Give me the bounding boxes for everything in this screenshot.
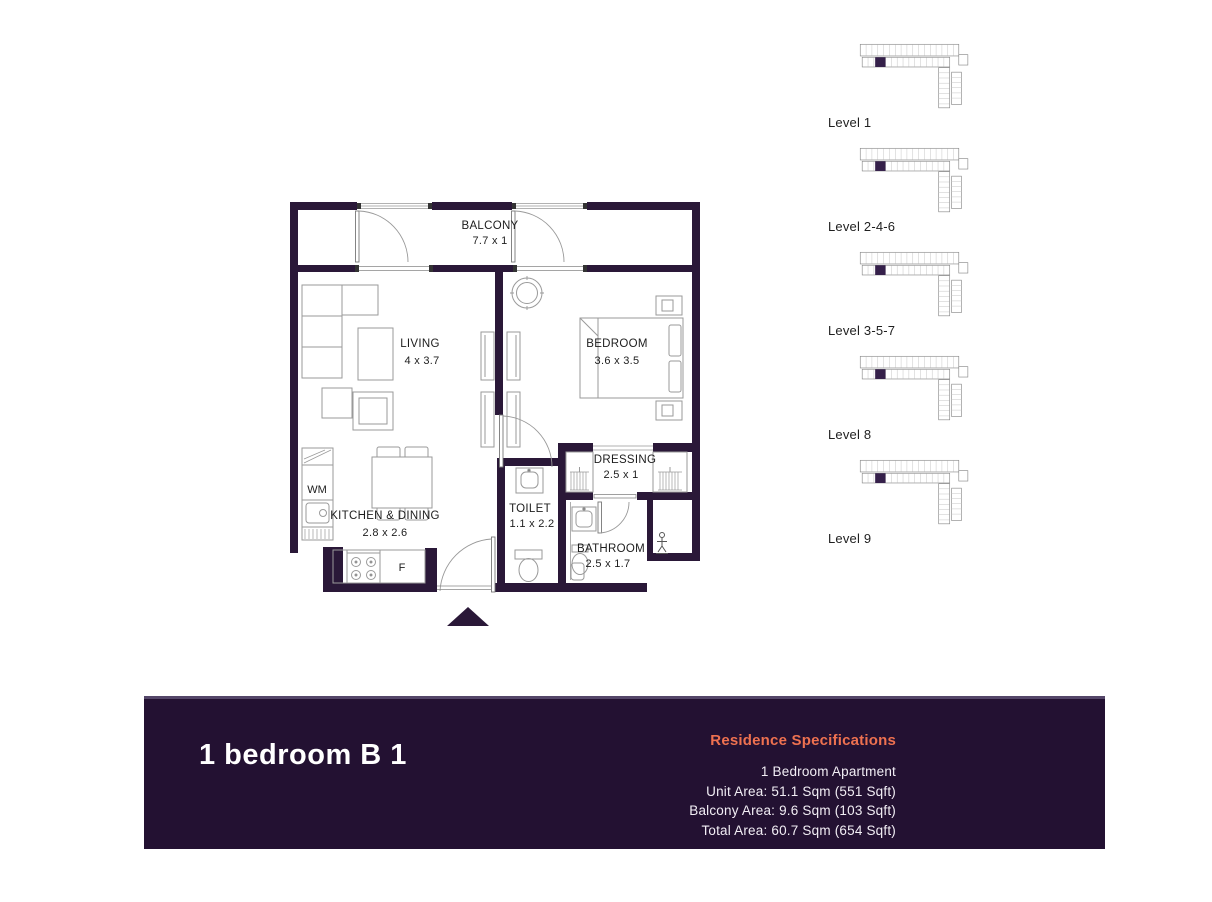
level-1-thumbnail	[826, 43, 1006, 113]
kitchen-label: KITCHEN & DINING	[330, 510, 440, 522]
unit-title: 1 bedroom B 1	[199, 739, 407, 772]
kitchen-dims: 2.8 x 2.6	[363, 527, 408, 539]
balcony-door-swings	[356, 211, 565, 262]
level-3-5-7-label: Level 3-5-7	[828, 323, 895, 338]
level-3-5-7-thumbnail	[826, 251, 1006, 321]
balcony-dims: 7.7 x 1	[472, 235, 507, 247]
spec-unit-area: Unit Area: 51.1 Sqm (551 Sqft)	[689, 782, 896, 802]
level-block-9: Level 9	[826, 459, 1016, 563]
dressing-opening	[593, 446, 653, 450]
entry-door	[437, 537, 495, 592]
level-block-3-5-7: Level 3-5-7	[826, 251, 1016, 355]
brochure-page: BALCONY 7.7 x 1 LIVING 4 x 3.7 BEDROOM 3…	[0, 0, 1212, 902]
floor-plan: BALCONY 7.7 x 1 LIVING 4 x 3.7 BEDROOM 3…	[285, 195, 705, 640]
washer-label: WM	[307, 484, 327, 496]
level-8-label: Level 8	[828, 427, 871, 442]
level-8-thumbnail	[826, 355, 1006, 425]
level-2-4-6-label: Level 2-4-6	[828, 219, 895, 234]
living-dims: 4 x 3.7	[404, 355, 439, 367]
room-labels: BALCONY 7.7 x 1 LIVING 4 x 3.7 BEDROOM 3…	[307, 220, 656, 574]
specs-heading: Residence Specifications	[689, 732, 896, 749]
bathroom-dims: 2.5 x 1.7	[586, 558, 631, 570]
bathroom-label: BATHROOM	[577, 543, 645, 555]
level-block-1: Level 1	[826, 43, 1016, 147]
bedroom-dims: 3.6 x 3.5	[595, 355, 640, 367]
spec-total-area: Total Area: 60.7 Sqm (654 Sqft)	[689, 821, 896, 841]
level-9-thumbnail	[826, 459, 1006, 529]
info-banner: 1 bedroom B 1 Residence Specifications 1…	[144, 696, 1105, 849]
level-block-2-4-6: Level 2-4-6	[826, 147, 1016, 251]
bathroom-door	[594, 495, 636, 534]
toilet-label: TOILET	[509, 503, 551, 515]
level-block-8: Level 8	[826, 355, 1016, 459]
dressing-dims: 2.5 x 1	[603, 469, 638, 481]
spec-balcony-area: Balcony Area: 9.6 Sqm (103 Sqft)	[689, 801, 896, 821]
entrance-arrow-icon	[447, 607, 489, 626]
level-2-4-6-thumbnail	[826, 147, 1006, 217]
balcony-label: BALCONY	[461, 220, 518, 232]
level-9-label: Level 9	[828, 531, 871, 546]
living-label: LIVING	[400, 338, 440, 350]
level-1-label: Level 1	[828, 115, 871, 130]
toilet-dims: 1.1 x 2.2	[510, 518, 555, 530]
bedroom-label: BEDROOM	[586, 338, 648, 350]
dressing-label: DRESSING	[594, 454, 656, 466]
spec-apartment-type: 1 Bedroom Apartment	[689, 762, 896, 782]
fridge-label: F	[399, 562, 406, 574]
shower-person-icon	[656, 533, 668, 554]
residence-specifications: Residence Specifications 1 Bedroom Apart…	[689, 732, 896, 840]
